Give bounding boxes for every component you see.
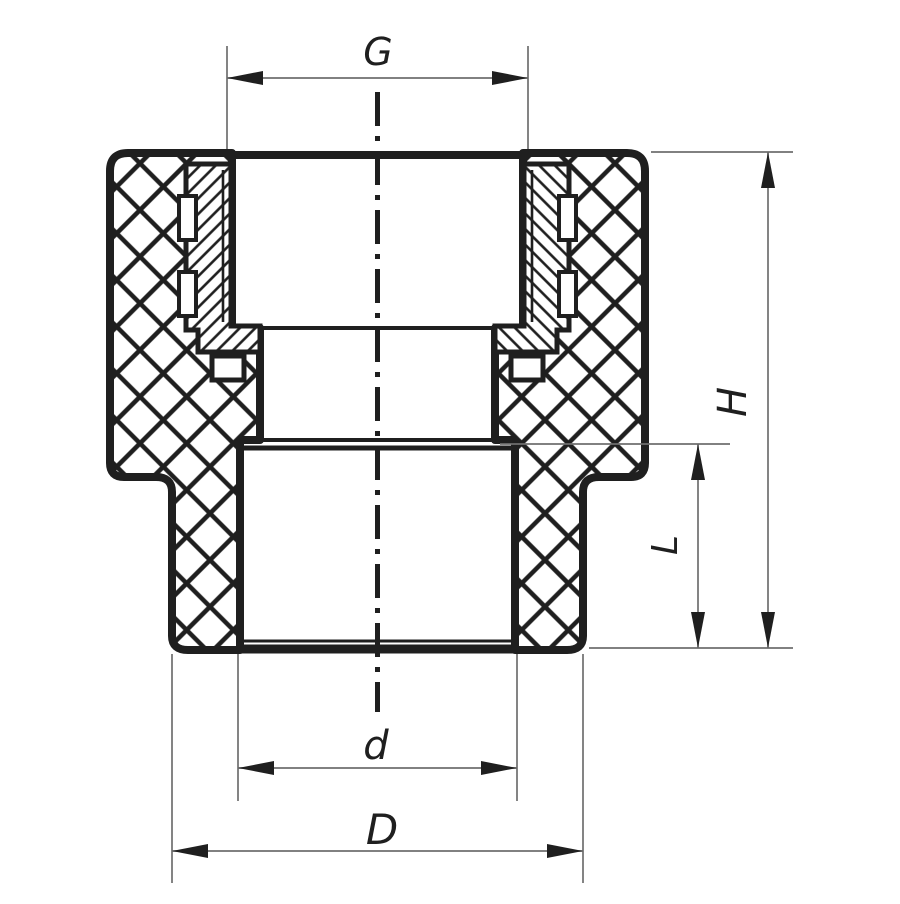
arrowhead-right bbox=[492, 71, 528, 85]
dimension-label-D: D bbox=[366, 805, 398, 854]
arrowhead-right bbox=[481, 761, 517, 775]
arrowhead-left bbox=[238, 761, 274, 775]
dimension-label-h: H bbox=[710, 387, 756, 417]
fitting-section-drawing: G H L d D bbox=[0, 0, 900, 900]
arrowhead-top bbox=[691, 444, 705, 480]
dimension-label-l: L bbox=[645, 535, 686, 555]
technical-drawing-canvas: G H L d D bbox=[0, 0, 900, 900]
arrowhead-right bbox=[547, 844, 583, 858]
section-right-half bbox=[495, 153, 645, 650]
arrowhead-bottom bbox=[761, 612, 775, 648]
arrowhead-left bbox=[227, 71, 263, 85]
section-left-half bbox=[110, 153, 260, 650]
arrowhead-top bbox=[761, 152, 775, 188]
arrowhead-left bbox=[172, 844, 208, 858]
dimension-label-d: d bbox=[363, 723, 389, 769]
dimension-label-g: G bbox=[363, 30, 392, 74]
dimension-G: G bbox=[227, 30, 528, 149]
dimension-d: d bbox=[238, 654, 517, 801]
arrowhead-bottom bbox=[691, 612, 705, 648]
